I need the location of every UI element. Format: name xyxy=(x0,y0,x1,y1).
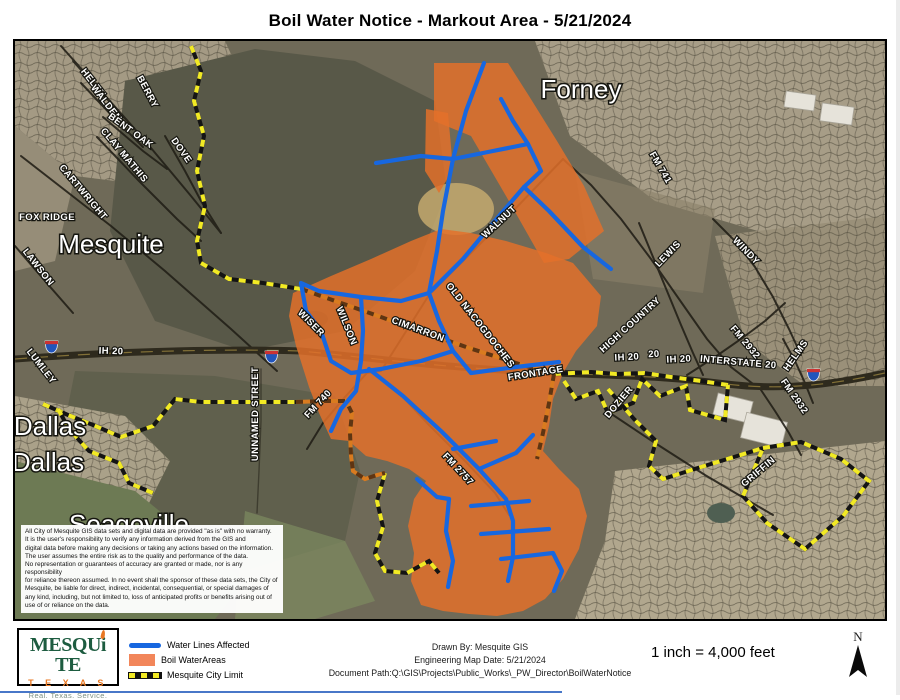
mesquite-logo: MESQUiTE T E X A S Real. Texas. Service. xyxy=(17,628,119,686)
disclaimer-line: Mesquite, be liable for direct, indirect… xyxy=(25,585,279,593)
sand-pit xyxy=(418,183,494,235)
document-path-text: Document Path:Q:\GIS\Projects\Public_Wor… xyxy=(290,667,670,680)
legend-row-boil-area: Boil WaterAreas xyxy=(129,653,250,667)
map-label-dallas: Dallas xyxy=(15,447,84,477)
map-label-ih-20: IH 20 xyxy=(614,351,639,363)
bottom-rule xyxy=(0,691,562,693)
legend-label: Water Lines Affected xyxy=(167,640,250,650)
legend-row-water-lines: Water Lines Affected xyxy=(129,638,250,652)
logo-wordmark: MESQUiTE xyxy=(19,635,117,675)
map-disclaimer: All City of Mesquite GIS data sets and d… xyxy=(21,525,283,613)
north-arrow-icon xyxy=(848,645,868,679)
map: MesquiteForneyDallasDallasSeagovilleFOX … xyxy=(13,39,887,621)
disclaimer-line: digital data before making any decisions… xyxy=(25,545,279,553)
water-line-swatch xyxy=(129,643,161,648)
map-label-ih-20: IH 20 xyxy=(99,346,124,358)
north-arrow: N xyxy=(842,629,874,684)
map-label-unnamed-street: UNNAMED STREET xyxy=(250,367,261,461)
map-label-ih-20: IH 20 xyxy=(666,353,691,365)
disclaimer-line: It is the user's responsibility to verif… xyxy=(25,536,279,544)
map-label-fox-ridge: FOX RIDGE xyxy=(19,212,75,223)
legend-row-city-limit: Mesquite City Limit xyxy=(129,668,250,682)
map-label-20: 20 xyxy=(648,349,660,361)
legend-label: Mesquite City Limit xyxy=(167,670,243,680)
city-limit-swatch xyxy=(129,673,161,678)
disclaimer-line: No representation or guarantees of accur… xyxy=(25,561,279,577)
disclaimer-line: The user assumes the entire risk as to t… xyxy=(25,553,279,561)
disclaimer-line: for reliance thereon assumed. In no even… xyxy=(25,577,279,585)
scale-text: 1 inch = 4,000 feet xyxy=(651,644,775,661)
pond xyxy=(707,503,735,523)
logo-flame-icon: i xyxy=(101,635,106,655)
map-label-forney: Forney xyxy=(541,74,622,104)
legend-label: Boil WaterAreas xyxy=(161,655,226,665)
map-label-mesquite: Mesquite xyxy=(58,229,164,259)
disclaimer-line: use of or reliance on the data. xyxy=(25,602,279,610)
page-title: Boil Water Notice - Markout Area - 5/21/… xyxy=(0,11,900,31)
disclaimer-line: All City of Mesquite GIS data sets and d… xyxy=(25,528,279,536)
map-label-dallas: Dallas xyxy=(15,411,86,441)
map-credits: Drawn By: Mesquite GIS Engineering Map D… xyxy=(290,641,670,681)
logo-state-text: T E X A S xyxy=(19,678,117,688)
map-legend: Water Lines Affected Boil WaterAreas Mes… xyxy=(129,638,250,683)
disclaimer-line: any kind, including, but not limited to,… xyxy=(25,594,279,602)
drawn-by-text: Drawn By: Mesquite GIS xyxy=(290,641,670,654)
page-edge xyxy=(896,0,900,695)
boil-area-swatch xyxy=(129,654,155,666)
map-date-text: Engineering Map Date: 5/21/2024 xyxy=(290,654,670,667)
north-label: N xyxy=(842,629,874,645)
